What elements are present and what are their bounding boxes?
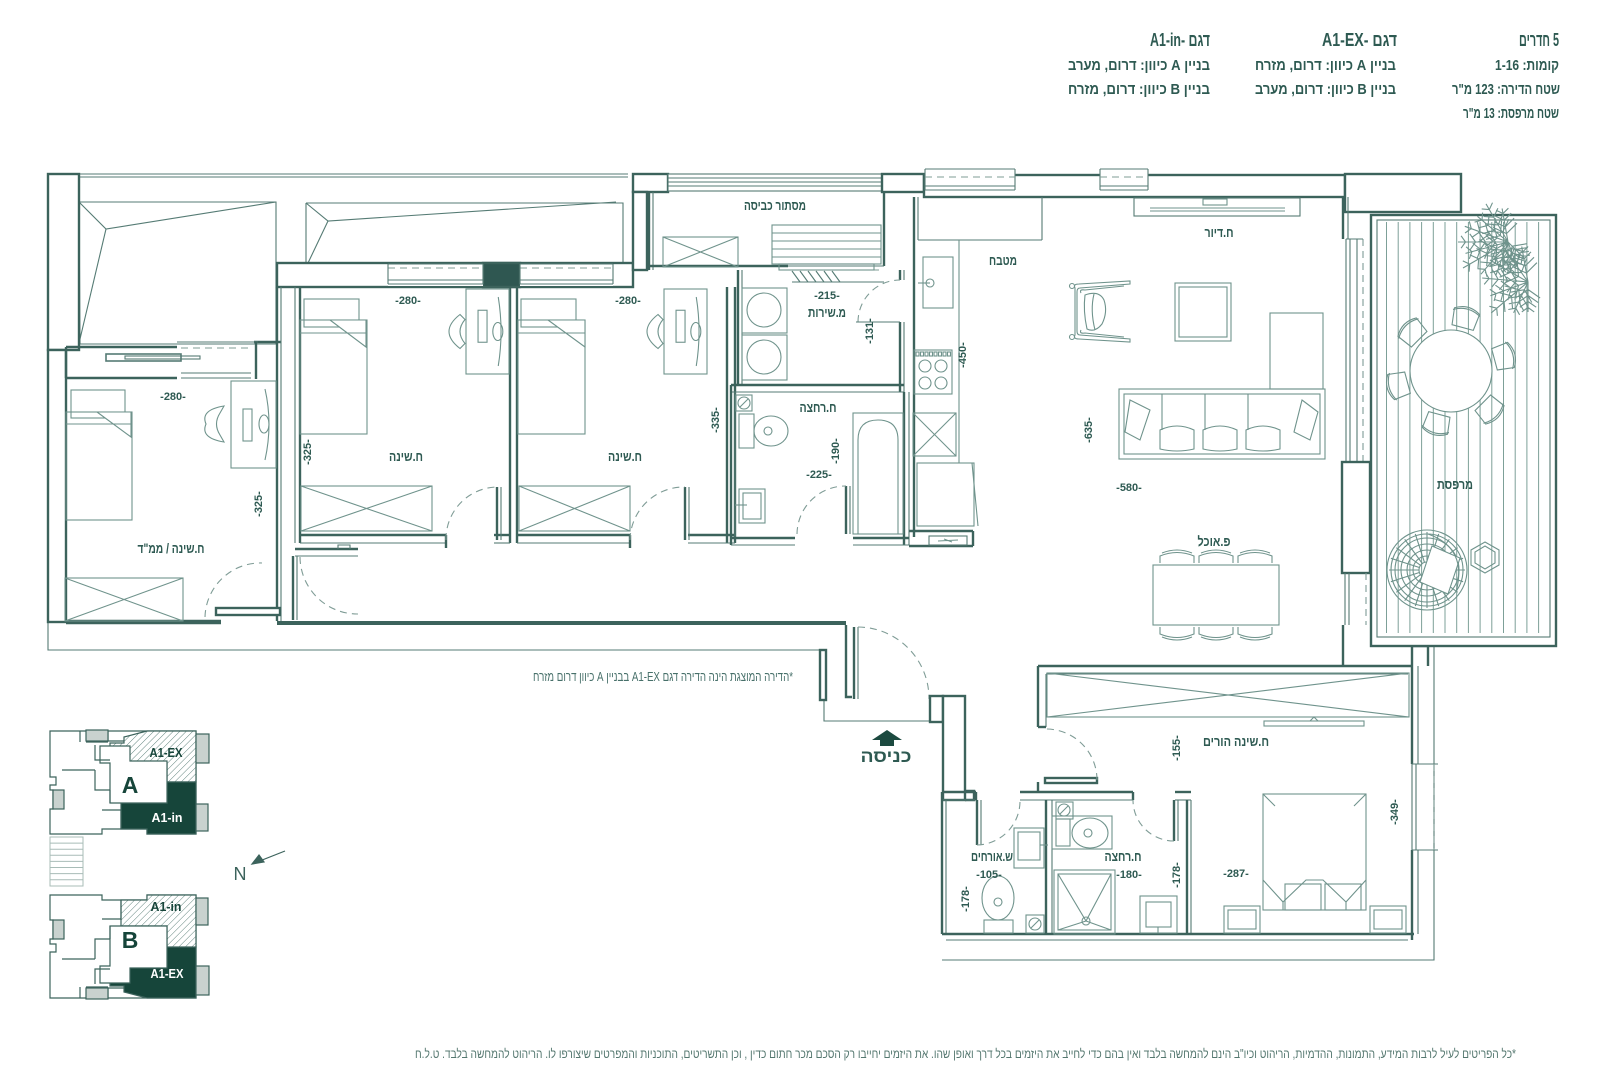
svg-text:מרפסת: מרפסת [1437, 477, 1473, 492]
svg-text:דגם -A1-EX: דגם -A1-EX [1322, 30, 1397, 50]
svg-text:-280-: -280- [615, 295, 641, 307]
svg-text:ש.אורחים: ש.אורחים [971, 849, 1013, 864]
svg-text:-178-: -178- [960, 886, 972, 912]
svg-text:מסתור כביסה: מסתור כביסה [744, 198, 806, 213]
svg-text:A1-in: A1-in [152, 810, 183, 825]
svg-text:ח.רחצה: ח.רחצה [800, 400, 837, 415]
svg-text:5 חדרים: 5 חדרים [1519, 30, 1559, 50]
svg-text:-580-: -580- [1116, 482, 1142, 494]
svg-text:A1-EX: A1-EX [151, 966, 184, 981]
svg-text:שטח הדירה: 123 מ"ר: שטח הדירה: 123 מ"ר [1452, 81, 1560, 98]
svg-text:בניין B כיוון: דרום, מערב: בניין B כיוון: דרום, מערב [1255, 81, 1396, 98]
svg-text:A: A [122, 772, 139, 798]
svg-text:-105-: -105- [976, 869, 1002, 881]
svg-text:A1-in: A1-in [151, 899, 182, 914]
svg-text:ח.שינה: ח.שינה [389, 449, 423, 464]
svg-text:-225-: -225- [806, 469, 832, 481]
svg-text:*הדירה המוצגת הינה הדירה דגם A: *הדירה המוצגת הינה הדירה דגם A1-EX בבניי… [533, 669, 793, 684]
svg-text:-280-: -280- [160, 391, 186, 403]
svg-text:פ.אוכל: פ.אוכל [1198, 534, 1231, 549]
svg-text:-635-: -635- [1083, 417, 1095, 443]
svg-text:בניין B כיוון: דרום, מזרח: בניין B כיוון: דרום, מזרח [1068, 81, 1210, 98]
svg-text:דגם -A1-in: דגם -A1-in [1150, 30, 1210, 50]
svg-text:-349-: -349- [1389, 799, 1401, 825]
svg-text:ח.דיור: ח.דיור [1205, 225, 1234, 240]
svg-text:-180-: -180- [1116, 869, 1142, 881]
svg-text:ח.שינה / ממ"ד: ח.שינה / ממ"ד [138, 541, 205, 556]
svg-text:-450-: -450- [957, 342, 969, 368]
svg-text:שטח מרפסת: 13 מ"ר: שטח מרפסת: 13 מ"ר [1463, 105, 1559, 122]
svg-text:-335-: -335- [710, 407, 722, 433]
svg-text:B: B [122, 927, 139, 953]
svg-text:-178-: -178- [1171, 862, 1183, 888]
svg-text:-131-: -131- [864, 318, 876, 344]
svg-text:*כל הפריטים לעיל לרבות המידע,: *כל הפריטים לעיל לרבות המידע, התמונות, ה… [415, 1047, 1516, 1061]
svg-text:מטבח: מטבח [989, 253, 1017, 268]
svg-text:-190-: -190- [830, 438, 842, 464]
svg-text:-325-: -325- [302, 439, 314, 465]
svg-text:מ.שירות: מ.שירות [808, 305, 846, 320]
svg-text:ח.שינה: ח.שינה [608, 449, 642, 464]
svg-text:בניין A כיוון: דרום, מזרח: בניין A כיוון: דרום, מזרח [1255, 57, 1396, 74]
svg-text:-215-: -215- [814, 290, 840, 302]
svg-text:-325-: -325- [253, 491, 265, 517]
svg-text:-280-: -280- [395, 295, 421, 307]
svg-text:ח.רחצה: ח.רחצה [1105, 849, 1142, 864]
svg-text:בניין A כיוון: דרום, מערב: בניין A כיוון: דרום, מערב [1068, 57, 1210, 74]
svg-text:כניסה: כניסה [861, 747, 912, 766]
svg-text:A1-EX: A1-EX [150, 745, 183, 760]
svg-text:-287-: -287- [1223, 868, 1249, 880]
svg-text:-155-: -155- [1171, 735, 1183, 761]
svg-text:N: N [234, 864, 247, 884]
svg-text:ח.שינה הורים: ח.שינה הורים [1203, 734, 1269, 749]
svg-text:קומות: 1-16: קומות: 1-16 [1495, 57, 1559, 74]
